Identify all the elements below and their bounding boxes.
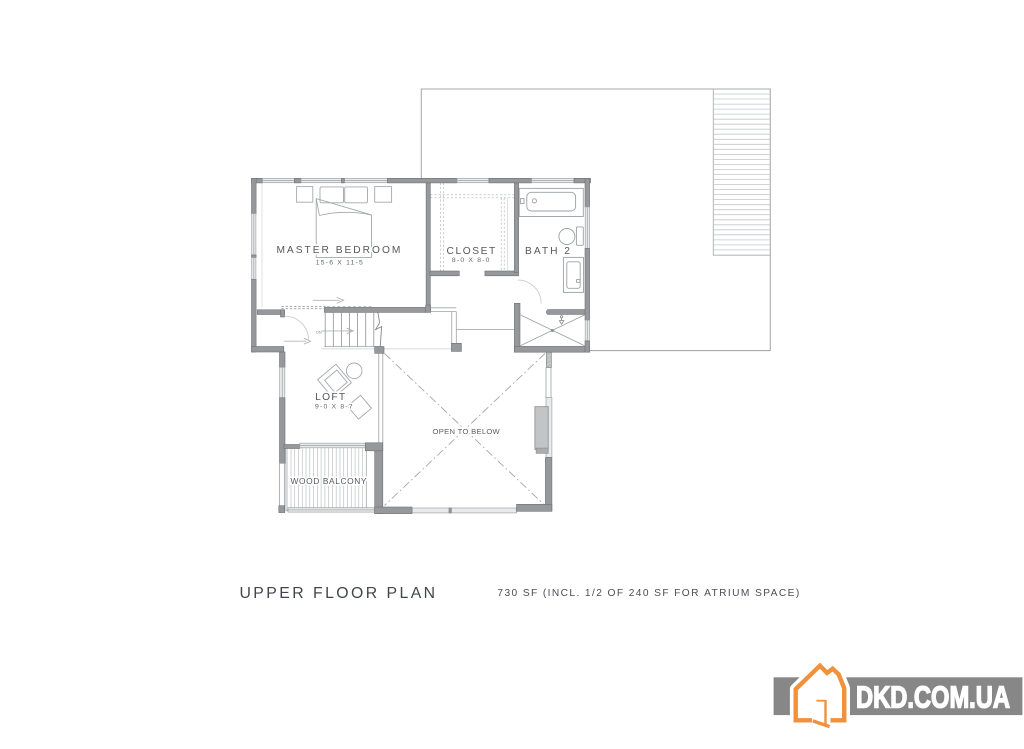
svg-text:DN: DN	[316, 329, 322, 334]
svg-text:LOFT: LOFT	[315, 392, 346, 403]
svg-text:UPPER FLOOR PLAN: UPPER FLOOR PLAN	[239, 585, 437, 602]
svg-text:MASTER BEDROOM: MASTER BEDROOM	[276, 245, 402, 256]
svg-text:BATH 2: BATH 2	[525, 246, 572, 257]
svg-text:9-0 X 8-7: 9-0 X 8-7	[315, 403, 354, 410]
svg-text:8-0 X 8-0: 8-0 X 8-0	[452, 257, 491, 264]
svg-text:OPEN TO BELOW: OPEN TO BELOW	[433, 427, 501, 436]
svg-text:15-6 X 11-5: 15-6 X 11-5	[316, 260, 364, 267]
svg-text:DKD.COM.UA: DKD.COM.UA	[856, 680, 1010, 715]
svg-text:730 SF (INCL. 1/2 OF 240 SF FO: 730 SF (INCL. 1/2 OF 240 SF FOR ATRIUM S…	[497, 588, 800, 599]
svg-text:CLOSET: CLOSET	[447, 246, 497, 257]
svg-text:WOOD BALCONY: WOOD BALCONY	[291, 476, 368, 486]
